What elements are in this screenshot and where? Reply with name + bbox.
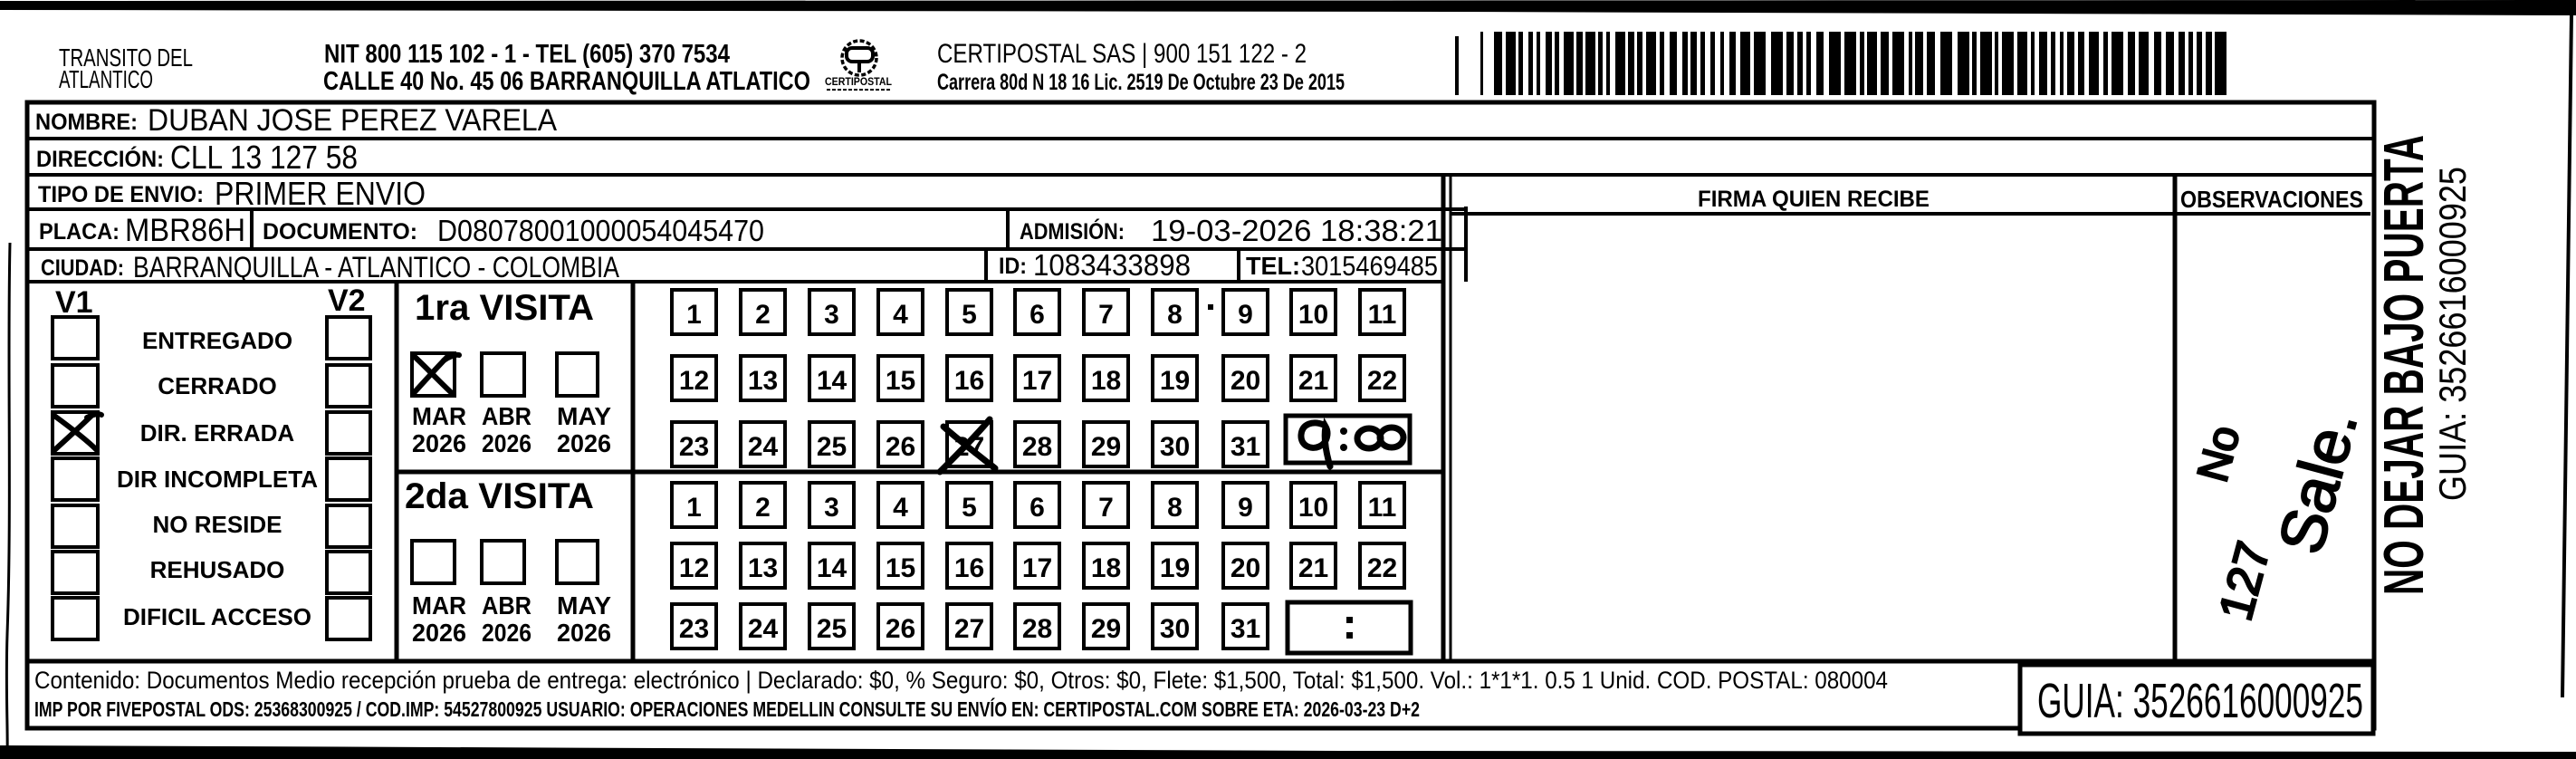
svg-text:2026: 2026 [557, 429, 611, 457]
svg-text:3: 3 [824, 493, 839, 523]
svg-text:MAR: MAR [412, 402, 466, 430]
svg-text:MAR: MAR [412, 591, 466, 620]
svg-text:29: 29 [1091, 432, 1121, 462]
svg-text:NO RESIDE: NO RESIDE [152, 511, 282, 538]
svg-text:11: 11 [1368, 300, 1397, 330]
svg-text:2026: 2026 [412, 619, 466, 647]
svg-text:DIR INCOMPLETA: DIR INCOMPLETA [117, 466, 318, 493]
svg-text:NOMBRE:: NOMBRE: [35, 110, 138, 135]
svg-text:TIPO DE ENVIO:: TIPO DE ENVIO: [38, 182, 204, 207]
svg-text:6: 6 [1029, 493, 1045, 523]
svg-text:CERTIPOSTAL: CERTIPOSTAL [825, 77, 892, 88]
svg-text:Carrera 80d N 18 16 Lic. 2519: Carrera 80d N 18 16 Lic. 2519 De Octubre… [937, 70, 1345, 95]
svg-text:16: 16 [954, 366, 984, 396]
svg-text:15: 15 [886, 366, 915, 396]
svg-text:17: 17 [1022, 553, 1052, 583]
svg-text:DIR. ERRADA: DIR. ERRADA [140, 419, 295, 447]
svg-text:2: 2 [755, 300, 771, 330]
svg-text:24: 24 [748, 432, 779, 462]
svg-text:28: 28 [1022, 614, 1052, 644]
svg-text:OBSERVACIONES: OBSERVACIONES [2180, 186, 2363, 213]
svg-text:GUIA: 3526616000925: GUIA: 3526616000925 [2431, 167, 2474, 501]
svg-text:ADMISIÓN:: ADMISIÓN: [1020, 217, 1125, 245]
svg-text:23: 23 [679, 614, 709, 644]
svg-text:D08078001000054045470: D08078001000054045470 [437, 214, 764, 247]
svg-text:DUBAN JOSE PEREZ VARELA: DUBAN JOSE PEREZ VARELA [148, 103, 557, 138]
svg-text:PRIMER ENVIO: PRIMER ENVIO [215, 175, 426, 212]
svg-text:1: 1 [686, 300, 702, 330]
svg-text:9: 9 [1238, 300, 1253, 330]
svg-text:NIT 800 115 102 - 1 - TEL (605: NIT 800 115 102 - 1 - TEL (605) 370 7534 [324, 40, 730, 69]
svg-text:18: 18 [1091, 366, 1121, 396]
svg-text:3: 3 [824, 300, 839, 330]
svg-text:ABR: ABR [482, 402, 531, 430]
svg-text:DOCUMENTO:: DOCUMENTO: [263, 219, 417, 245]
svg-text:26: 26 [886, 432, 915, 462]
svg-text:28: 28 [1022, 432, 1052, 462]
svg-text:2026: 2026 [482, 619, 531, 647]
svg-text:5: 5 [962, 493, 977, 523]
svg-text:ATLANTICO: ATLANTICO [59, 65, 153, 93]
svg-text:19-03-2026 18:38:21: 19-03-2026 18:38:21 [1151, 214, 1442, 247]
svg-text:CERTIPOSTAL SAS | 900 151 122: CERTIPOSTAL SAS | 900 151 122 - 2 [937, 39, 1307, 69]
svg-text:8: 8 [1167, 493, 1183, 523]
svg-text:29: 29 [1091, 614, 1121, 644]
svg-text:30: 30 [1160, 614, 1190, 644]
svg-text:2026: 2026 [482, 429, 531, 457]
svg-text:21: 21 [1298, 553, 1328, 583]
svg-text:ENTREGADO: ENTREGADO [142, 327, 292, 354]
svg-text:7: 7 [1098, 493, 1114, 523]
svg-text:21: 21 [1298, 366, 1328, 396]
svg-text:BARRANQUILLA - ATLANTICO - COL: BARRANQUILLA - ATLANTICO - COLOMBIA [133, 251, 620, 283]
svg-text:ABR: ABR [482, 591, 531, 620]
svg-text:7: 7 [1098, 300, 1114, 330]
svg-text:DIFICIL ACCESO: DIFICIL ACCESO [123, 603, 311, 630]
svg-text:2026: 2026 [412, 429, 466, 457]
svg-text:CALLE 40 No. 45 06 BARRANQUILL: CALLE 40 No. 45 06 BARRANQUILLA ATLATICO [323, 67, 810, 96]
svg-text:25: 25 [817, 432, 847, 462]
svg-text:4: 4 [893, 493, 908, 523]
svg-text:1: 1 [686, 493, 702, 523]
svg-text:19: 19 [1160, 366, 1190, 396]
svg-text:22: 22 [1367, 366, 1397, 396]
svg-text:10: 10 [1298, 300, 1328, 330]
svg-text:TEL:: TEL: [1246, 252, 1300, 280]
svg-text:ID:: ID: [999, 254, 1027, 279]
svg-text:31: 31 [1231, 614, 1260, 644]
svg-text:NO DEJAR BAJO PUERTA: NO DEJAR BAJO PUERTA [2373, 135, 2436, 595]
svg-text:31: 31 [1231, 432, 1260, 462]
svg-text:4: 4 [893, 300, 908, 330]
svg-text:12: 12 [679, 553, 709, 583]
svg-text:2da VISITA: 2da VISITA [405, 476, 594, 516]
svg-text:V1: V1 [55, 285, 93, 320]
svg-text:6: 6 [1029, 300, 1045, 330]
svg-text:20: 20 [1231, 553, 1260, 583]
svg-text:20: 20 [1231, 366, 1260, 396]
svg-text:30: 30 [1160, 432, 1190, 462]
svg-text:Contenido: Documentos Medio re: Contenido: Documentos Medio recepción pr… [34, 667, 1888, 694]
svg-text:FIRMA QUIEN RECIBE: FIRMA QUIEN RECIBE [1698, 187, 1930, 212]
svg-text:GUIA: 3526616000925: GUIA: 3526616000925 [2037, 674, 2363, 728]
svg-text:CIUDAD:: CIUDAD: [41, 255, 124, 281]
svg-text:PLACA:: PLACA: [39, 219, 120, 245]
svg-text:1083433898: 1083433898 [1033, 248, 1191, 282]
svg-text:8: 8 [1167, 300, 1183, 330]
svg-text:REHUSADO: REHUSADO [150, 556, 285, 583]
svg-text:10: 10 [1298, 493, 1328, 523]
svg-text:26: 26 [886, 614, 915, 644]
svg-text:9: 9 [1238, 493, 1253, 523]
svg-text:18: 18 [1091, 553, 1121, 583]
svg-text:MBR86H: MBR86H [125, 213, 245, 248]
svg-text:2026: 2026 [557, 619, 611, 647]
svg-text:3015469485: 3015469485 [1301, 250, 1438, 282]
svg-text:MAY: MAY [557, 402, 611, 430]
svg-text:14: 14 [817, 366, 847, 396]
svg-text:CERRADO: CERRADO [158, 372, 276, 399]
svg-text:1ra VISITA: 1ra VISITA [415, 288, 594, 328]
svg-text:V2: V2 [328, 283, 366, 318]
svg-text:12: 12 [679, 366, 709, 396]
svg-text:DIRECCIÓN:: DIRECCIÓN: [36, 145, 164, 172]
svg-text:23: 23 [679, 432, 709, 462]
svg-text:17: 17 [1022, 366, 1052, 396]
svg-text:5: 5 [962, 300, 977, 330]
svg-text:MAY: MAY [557, 591, 611, 620]
svg-text:16: 16 [954, 553, 984, 583]
svg-text:14: 14 [817, 553, 847, 583]
svg-text:25: 25 [817, 614, 847, 644]
svg-text:13: 13 [748, 366, 778, 396]
svg-text:19: 19 [1160, 553, 1190, 583]
svg-text:24: 24 [748, 614, 779, 644]
svg-text:2: 2 [755, 493, 771, 523]
svg-text:13: 13 [748, 553, 778, 583]
svg-text:15: 15 [886, 553, 915, 583]
svg-text:27: 27 [954, 614, 984, 644]
svg-text:CLL 13 127 58: CLL 13 127 58 [170, 139, 358, 176]
svg-text:IMP POR FIVEPOSTAL ODS: 253683: IMP POR FIVEPOSTAL ODS: 25368300925 / CO… [34, 697, 1420, 721]
svg-text:11: 11 [1368, 493, 1397, 523]
svg-text:22: 22 [1367, 553, 1397, 583]
